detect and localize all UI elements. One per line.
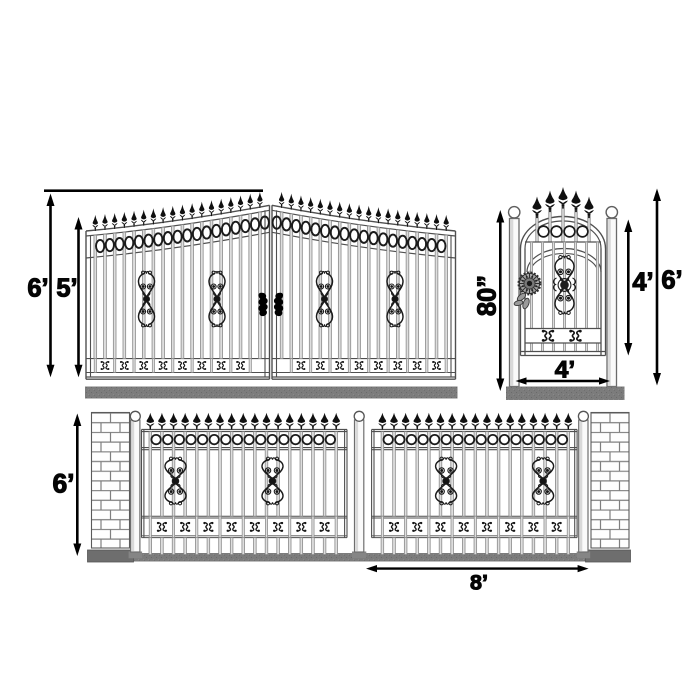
svg-text:4’: 4’ [632,269,653,297]
svg-text:4’: 4’ [555,357,575,384]
svg-text:80”: 80” [474,275,502,316]
svg-text:6’: 6’ [52,469,74,499]
svg-text:6’: 6’ [661,267,682,295]
svg-text:6’: 6’ [27,275,48,303]
svg-text:5’: 5’ [56,275,77,303]
svg-text:8’: 8’ [470,571,488,595]
